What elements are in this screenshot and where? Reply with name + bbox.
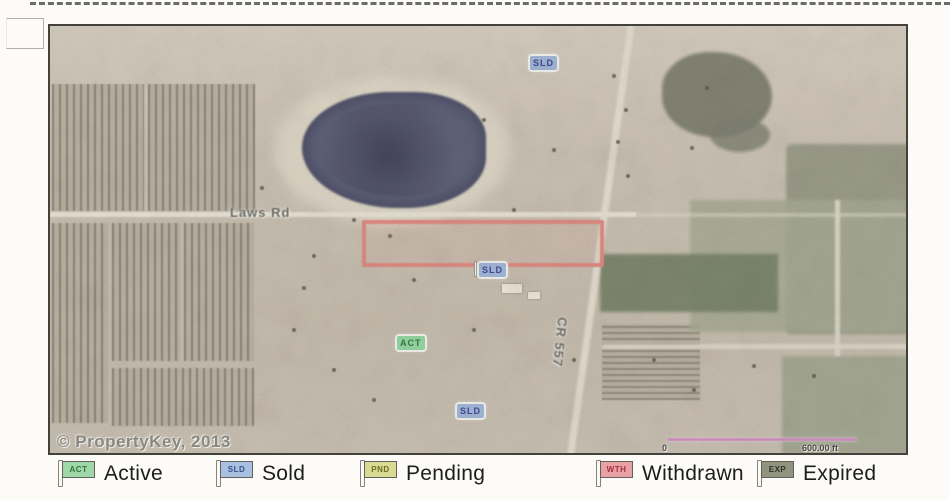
legend-label-expired: Expired <box>803 462 876 486</box>
legend-item-withdrawn: WTH Withdrawn <box>596 460 744 487</box>
flag-face: EXP <box>761 461 794 478</box>
sold-flag-icon: SLD <box>530 56 557 70</box>
grove-band <box>600 254 778 312</box>
orchard-field <box>52 223 108 423</box>
listing-marker-sold[interactable]: SLD <box>530 53 557 71</box>
orchard-field <box>184 223 254 361</box>
expired-flag-icon: EXP <box>757 460 794 487</box>
scanned-report-page: Laws Rd CR 557 SLD SLD ACT SLD © Propert… <box>0 0 950 500</box>
orchard-field <box>112 223 180 361</box>
row-crop-field <box>602 324 700 400</box>
active-flag-icon: ACT <box>397 336 425 350</box>
tree-cluster <box>710 118 770 152</box>
listing-marker-sold[interactable]: SLD <box>457 401 484 419</box>
listing-marker-active[interactable]: ACT <box>397 333 425 351</box>
building <box>502 284 522 293</box>
laws-rd-label: Laws Rd <box>230 205 290 220</box>
cr557-label: CR 557 <box>550 316 570 367</box>
legend-label-active: Active <box>104 462 163 486</box>
watermark: © PropertyKey, 2013 <box>57 432 231 452</box>
flag-pole <box>474 261 477 277</box>
status-legend: ACT Active SLD Sold PND Pending WTH With… <box>0 458 950 498</box>
listing-marker-sold[interactable]: SLD <box>474 260 506 278</box>
scan-corner-box-artifact <box>6 18 44 49</box>
orchard-field <box>112 368 254 426</box>
flag-face: WTH <box>600 461 633 478</box>
scale-end-label: 600.00 ft <box>802 443 838 453</box>
flag-face: ACT <box>62 461 95 478</box>
sold-flag-icon: SLD <box>479 263 506 277</box>
scan-dashed-rule <box>30 2 950 5</box>
building <box>528 292 540 299</box>
legend-label-sold: Sold <box>262 462 305 486</box>
legend-item-expired: EXP Expired <box>757 460 876 487</box>
legend-label-withdrawn: Withdrawn <box>642 462 744 486</box>
laws-road <box>50 212 636 217</box>
laws-road-extension <box>636 213 908 217</box>
dirt-lane <box>835 200 840 356</box>
legend-item-sold: SLD Sold <box>216 460 305 487</box>
scattered-trees <box>50 26 54 30</box>
legend-item-pending: PND Pending <box>360 460 485 487</box>
sold-flag-icon: SLD <box>216 460 253 487</box>
orchard-field <box>148 84 255 211</box>
dirt-lane <box>602 344 908 349</box>
legend-label-pending: Pending <box>406 462 485 486</box>
scale-start-label: 0 <box>662 443 667 453</box>
flag-face: SLD <box>220 461 253 478</box>
flag-face: PND <box>364 461 397 478</box>
aerial-map: Laws Rd CR 557 SLD SLD ACT SLD © Propert… <box>48 24 908 455</box>
active-flag-icon: ACT <box>58 460 95 487</box>
sold-flag-icon: SLD <box>457 404 484 418</box>
withdrawn-flag-icon: WTH <box>596 460 633 487</box>
orchard-field <box>52 84 144 211</box>
pending-flag-icon: PND <box>360 460 397 487</box>
legend-item-active: ACT Active <box>58 460 163 487</box>
scale-bar <box>667 438 857 441</box>
